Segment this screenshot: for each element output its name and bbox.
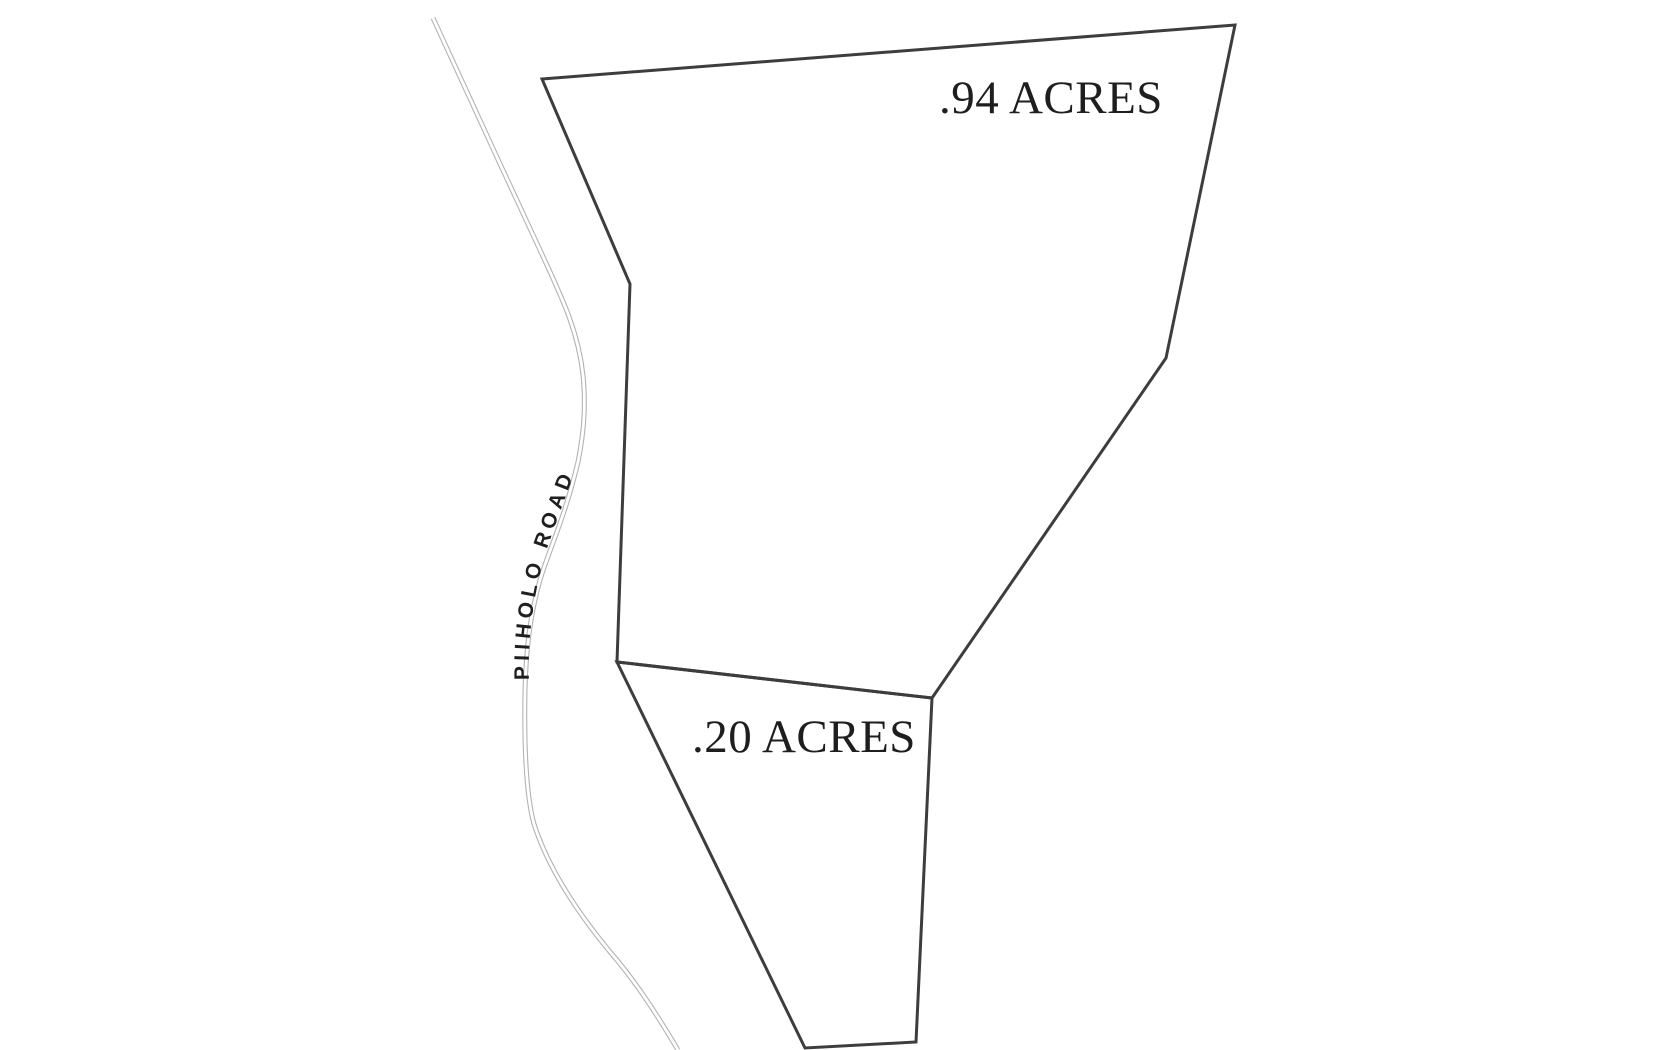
- parcel-94-outline: [542, 25, 1235, 698]
- plat-map-canvas: .94 ACRES .20 ACRES PIIHOLO ROAD: [0, 0, 1680, 1050]
- road-name-textpath: PIIHOLO ROAD: [511, 466, 580, 680]
- road-name-label: PIIHOLO ROAD: [511, 466, 580, 680]
- parcel-20-label: .20 ACRES: [692, 711, 916, 763]
- plat-map-svg: .94 ACRES .20 ACRES PIIHOLO ROAD: [0, 0, 1680, 1050]
- parcel-94-label: .94 ACRES: [939, 72, 1163, 124]
